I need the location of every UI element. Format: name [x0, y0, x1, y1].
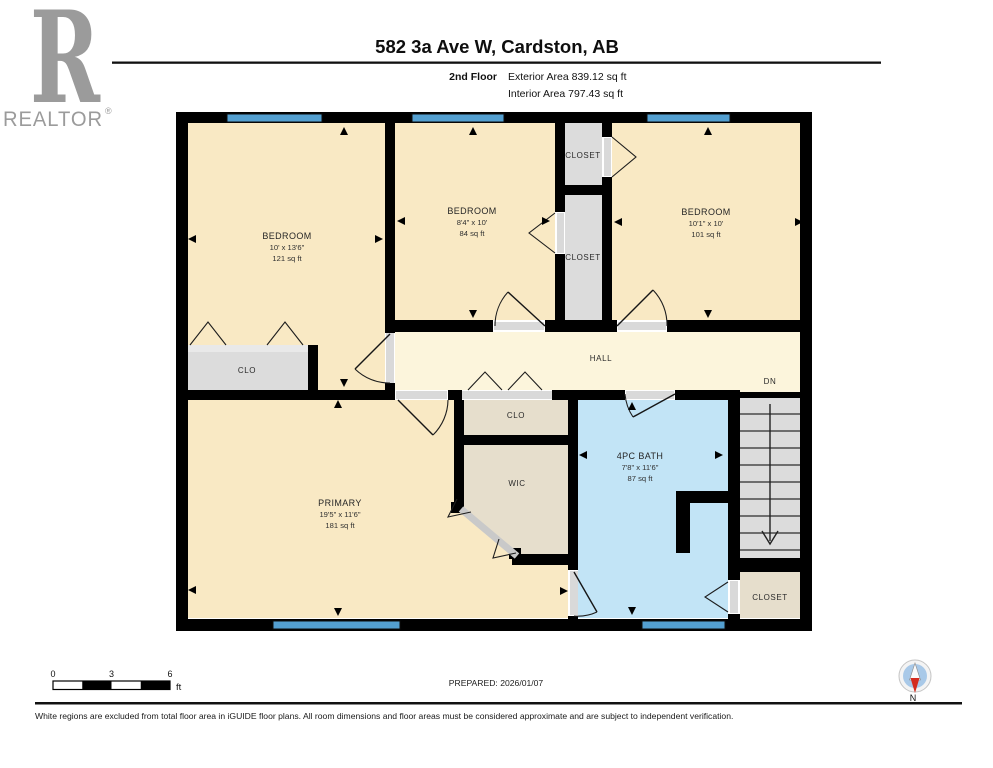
window-bedroom-right: [647, 114, 730, 122]
primary-dims: 19'5" x 11'6": [319, 510, 360, 519]
bedroom-right-dims: 10'1" x 10': [689, 219, 724, 228]
wall-closet-bedroom-left-side: [308, 345, 318, 390]
window-bedroom-middle: [412, 114, 504, 122]
scale-unit-label: ft: [176, 682, 182, 693]
wall-stairs-bottom: [728, 558, 812, 572]
scale-tick-0: 0: [50, 669, 55, 679]
bath-floor: [578, 400, 728, 618]
closet-top-label: CLOSET: [565, 151, 601, 160]
wall-hall-top-b: [545, 320, 617, 332]
realtor-logo: R REALTOR ®: [3, 0, 112, 132]
bedroom-right-area: 101 sq ft: [691, 230, 721, 239]
hall-label: HALL: [590, 354, 612, 363]
header-rule: [112, 62, 881, 64]
threshold-primary-door: [396, 391, 447, 399]
threshold-closet-top-door: [604, 138, 611, 176]
primary-area: 181 sq ft: [325, 521, 355, 530]
wall-bath-left-upper: [568, 400, 578, 570]
bath-dims: 7'8" x 11'6": [622, 463, 659, 472]
stairs-dn-label: DN: [764, 377, 777, 386]
wall-wic-bottom: [512, 554, 578, 565]
wall-hall-top-c: [667, 320, 812, 332]
wall-closet-right-upper: [602, 123, 612, 137]
wall-hall-top-a: [385, 320, 493, 332]
room-fills: [188, 123, 800, 618]
closet-mid-label: CLOSET: [565, 253, 601, 262]
wall-closet-divider: [555, 185, 612, 195]
bedroom-left-name: BEDROOM: [262, 231, 311, 241]
compass-north-label: N: [910, 693, 917, 703]
bedroom-left-area: 121 sq ft: [272, 254, 302, 263]
bedroom-middle-area: 84 sq ft: [460, 229, 486, 238]
closet-bottom-label: CLOSET: [752, 593, 788, 602]
page-title: 582 3a Ave W, Cardston, AB: [375, 36, 619, 57]
prepared-date-label: PREPARED: 2026/01/07: [449, 678, 544, 688]
wall-hall-bottom-c: [552, 390, 625, 400]
wall-stairs-top: [740, 392, 800, 398]
threshold-bedroom-middle-door: [494, 322, 544, 330]
bath-name: 4PC BATH: [617, 451, 664, 461]
closet-bedroom-left-track: [188, 345, 308, 352]
threshold-closet-bottom-door: [730, 581, 738, 613]
wall-bath-partition-vertical: [676, 491, 690, 553]
closet-hall-label: CLO: [507, 411, 525, 420]
wall-closet-left-lower: [555, 254, 565, 320]
threshold-closet-mid-door: [557, 213, 564, 253]
compass: N: [899, 660, 931, 703]
wall-bath-right: [728, 390, 740, 580]
wall-clo-wic-divider: [454, 435, 578, 445]
bath-area: 87 sq ft: [628, 474, 654, 483]
hall-floor-stair-landing: [740, 332, 800, 398]
scale-tick-6: 6: [167, 669, 172, 679]
scale-bar: 0 3 6 ft: [50, 669, 181, 693]
floor-plan-page: R REALTOR ® 582 3a Ave W, Cardston, AB 2…: [0, 0, 993, 768]
floor-label: 2nd Floor: [449, 71, 497, 83]
wall-hall-bottom-b: [448, 390, 462, 400]
window-bedroom-left: [227, 114, 322, 122]
registered-trademark-icon: ®: [105, 106, 112, 116]
wall-outer-left: [176, 112, 188, 631]
wall-bedroom-left-right-upper: [385, 123, 395, 333]
bedroom-left-dims: 10' x 13'6": [270, 243, 305, 252]
closet-bedroom-left-label: CLO: [238, 366, 256, 375]
scale-tick-3: 3: [109, 669, 114, 679]
wall-bath-left-stub: [568, 616, 578, 621]
wall-wic-left: [454, 400, 464, 508]
bedroom-middle-name: BEDROOM: [447, 206, 496, 216]
wic-label: WIC: [508, 479, 525, 488]
disclaimer-text: White regions are excluded from total fl…: [35, 711, 733, 721]
interior-area-label: Interior Area 797.43 sq ft: [508, 88, 623, 100]
window-primary: [273, 621, 400, 629]
wall-outer-right: [800, 112, 812, 631]
window-bath: [642, 621, 725, 629]
wall-bath-right-stub: [728, 614, 740, 631]
footer-rule: [35, 702, 962, 705]
floor-plan-canvas: R REALTOR ® 582 3a Ave W, Cardston, AB 2…: [0, 0, 993, 768]
bedroom-right-name: BEDROOM: [681, 207, 730, 217]
header: 582 3a Ave W, Cardston, AB 2nd Floor Ext…: [112, 36, 881, 100]
primary-name: PRIMARY: [318, 498, 362, 508]
threshold-closet-hall-track: [462, 391, 552, 399]
exterior-area-label: Exterior Area 839.12 sq ft: [508, 71, 627, 83]
wall-hall-bottom-a: [176, 390, 395, 400]
wall-closet-left-upper: [555, 123, 565, 212]
scale-bar-segment: [141, 681, 170, 690]
realtor-wordmark: REALTOR: [3, 107, 103, 131]
wall-closet-right-lower: [602, 177, 612, 320]
scale-bar-segment: [82, 681, 111, 690]
threshold-bedroom-right-door: [618, 322, 666, 330]
threshold-bedroom-left-door: [386, 333, 394, 383]
bedroom-middle-dims: 8'4" x 10': [457, 218, 488, 227]
